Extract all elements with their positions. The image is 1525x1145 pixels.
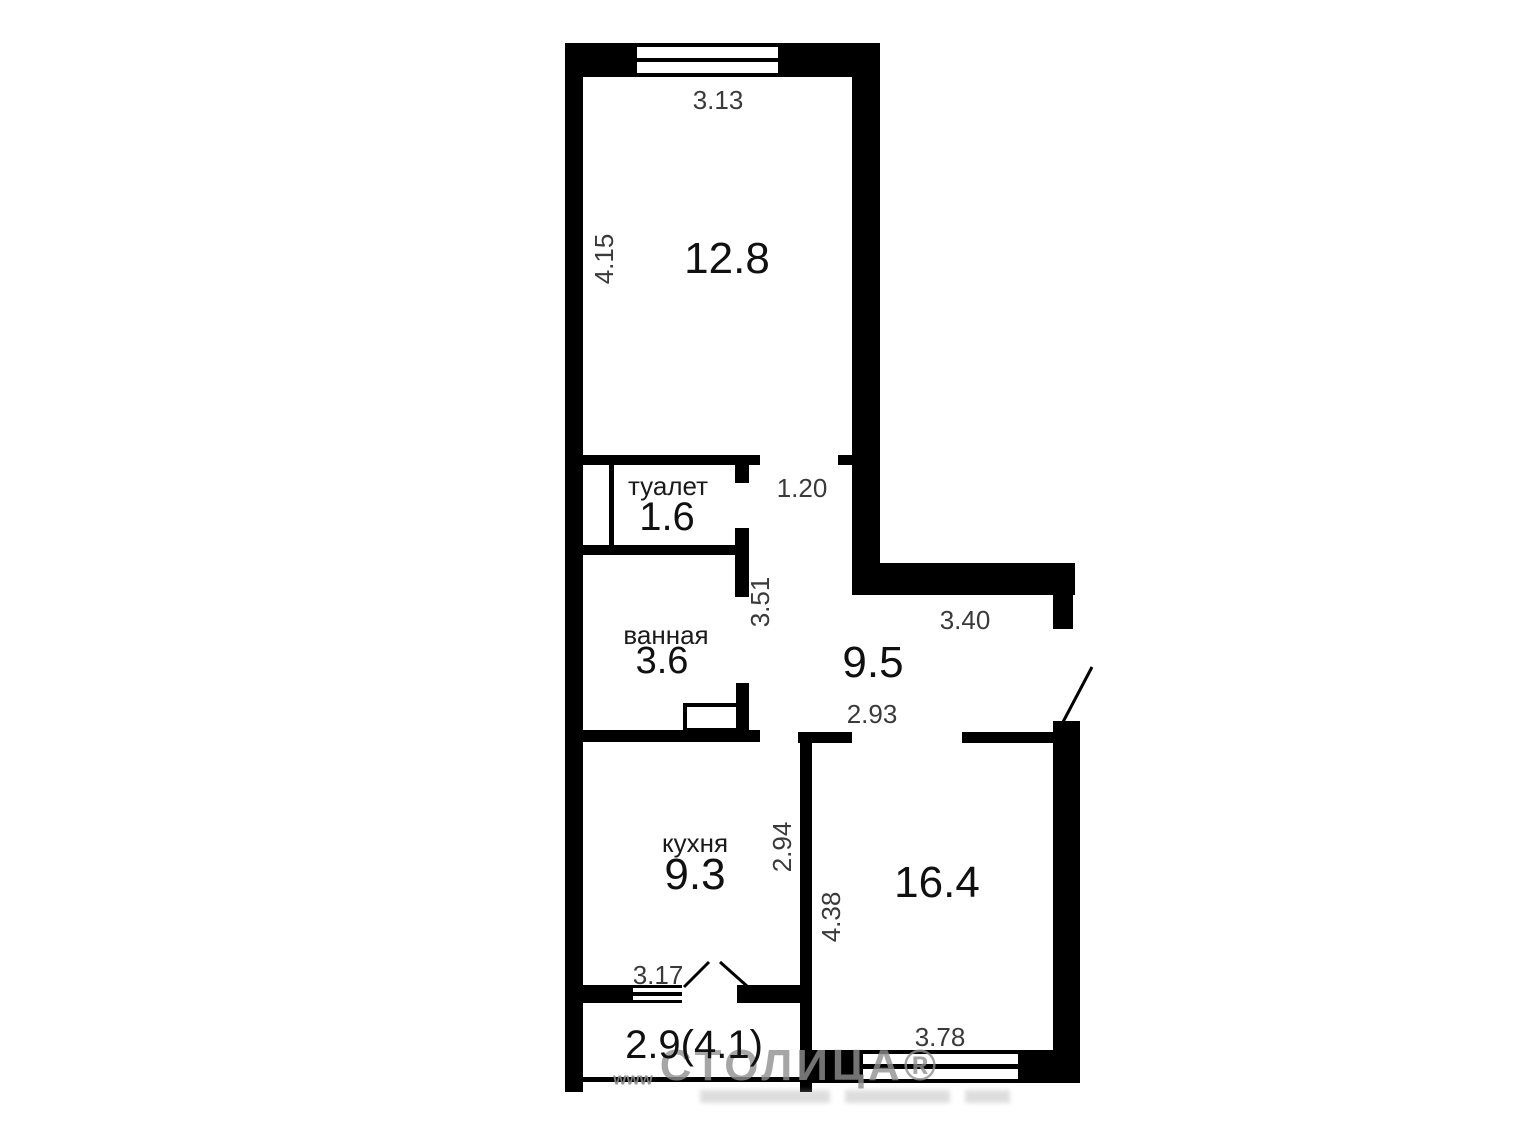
- door-swing-lines: [0, 0, 1525, 1145]
- dim-hall-width: 3.40: [940, 607, 991, 633]
- dim-hall-depth: 3.51: [747, 577, 773, 628]
- dim-room-depth: 4.38: [818, 892, 844, 943]
- wall-toilet-bottom: [565, 545, 737, 555]
- room-area-toilet: 1.6: [639, 497, 695, 537]
- room-area-kitchen: 9.3: [664, 853, 725, 897]
- wall-toilet-top: [578, 455, 760, 465]
- window-living-frame-line: [637, 58, 778, 62]
- window-living: [637, 47, 778, 73]
- balcony-door-swing-left: [684, 962, 709, 987]
- room-area-living: 12.8: [684, 237, 770, 281]
- room-area-bathroom: 3.6: [636, 642, 689, 680]
- watermark-blur-segment: [700, 1090, 830, 1103]
- dim-hall-lower-width: 2.93: [847, 701, 898, 727]
- wall-kitchen-room-partition: [800, 732, 812, 1092]
- dim-living-width: 3.13: [693, 87, 744, 113]
- wall-living-right: [852, 43, 880, 595]
- dim-living-depth: 4.15: [591, 234, 617, 285]
- watermark-prefix: www: [613, 1071, 653, 1088]
- room-area-hallway: 9.5: [842, 641, 903, 685]
- wall-left-exterior: [565, 43, 583, 1092]
- floor-plan: СТОЛИЦА® www 12.8 туалет 1.6 ванная 3.6 …: [0, 0, 1525, 1145]
- wall-hall-opening-stub: [838, 455, 852, 465]
- wall-entrance-jamb-top: [1053, 563, 1073, 629]
- window-kitchen-frame-line: [633, 992, 682, 996]
- dim-kitchen-window: 3.17: [633, 962, 684, 988]
- watermark-blur-segment: [965, 1090, 1010, 1103]
- wall-room-top-right: [962, 732, 1053, 743]
- dim-room-window: 3.78: [915, 1024, 966, 1050]
- room-area-balcony: 2.9(4.1): [625, 1025, 763, 1065]
- wall-toilet-door-jamb-top: [735, 465, 749, 483]
- kitchen-balcony-door-opening: [682, 985, 737, 1003]
- bathroom-fixture: [683, 703, 740, 732]
- entrance-door-swing: [1063, 667, 1092, 722]
- balcony-door-swing-right: [720, 962, 748, 987]
- wall-room-right-exterior: [1053, 721, 1080, 1083]
- dim-kitchen-depth: 2.94: [769, 822, 795, 873]
- watermark-blur-segment: [845, 1090, 950, 1103]
- room-area-room: 16.4: [894, 861, 980, 905]
- wall-hall-top: [852, 563, 1075, 595]
- dim-hall-opening: 1.20: [777, 475, 828, 501]
- wall-toilet-left-partition: [609, 465, 614, 545]
